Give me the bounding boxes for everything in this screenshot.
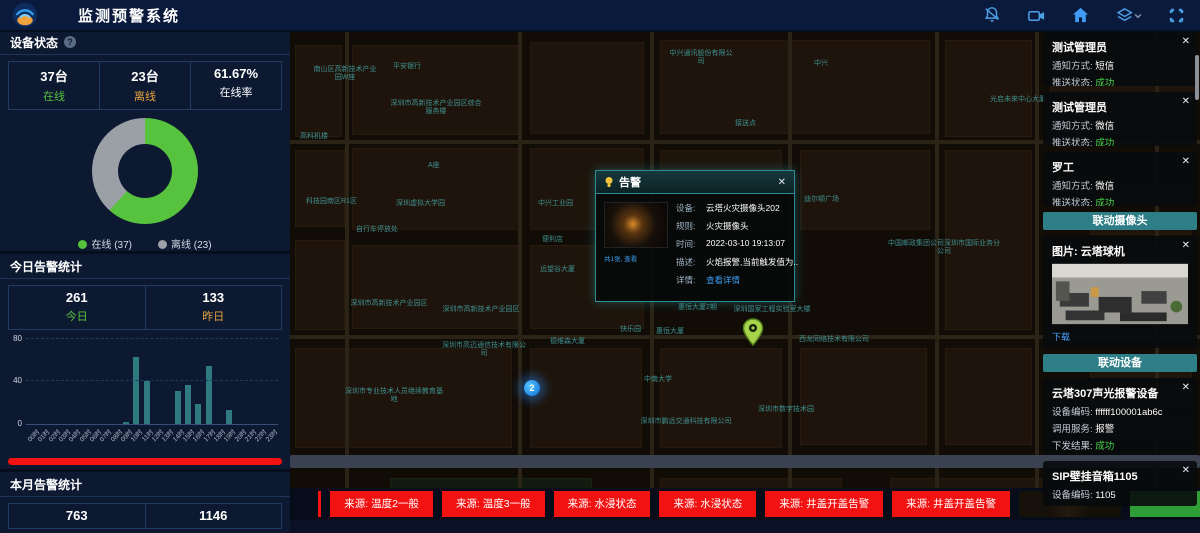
card-close-icon[interactable]: ✕ [1182,465,1190,476]
alert-field-label: 详情: [676,274,706,286]
legend-item: 离线 (23) [158,236,212,251]
bar-slot [90,338,100,424]
linked-devices-header[interactable]: 联动设备 [1043,354,1197,372]
card-row-value: 微信 [1095,121,1114,132]
card-row: 通知方式: 微信 [1052,178,1188,192]
stat-value: 37台 [9,66,99,85]
map-building-block [352,148,519,230]
card-row-value: 短信 [1095,61,1114,72]
map-label: 惠恒大厦 [656,328,684,336]
map-label: 便利店 [542,236,563,244]
card-row: 设备编码: ffffff100001ab6c [1052,404,1188,418]
device-donut-wrap [0,118,290,224]
device-status-donut-chart [92,118,198,224]
map-label: 深圳国家工程实验室大楼 [730,306,814,314]
card-title: 测试管理员 [1052,39,1188,55]
bar [206,366,212,424]
bar-slot [121,338,131,424]
map-park-block [660,478,842,488]
map-label: 中兴工业园 [538,200,573,208]
video-camera-icon[interactable] [1026,5,1046,25]
month-alerts-panel: 本月告警统计 7631146 [0,469,290,533]
map-building-block [530,42,644,134]
map-label: 光启未来中心大厦 [990,96,1046,104]
bar-slot [59,338,69,424]
notification-card: ✕测试管理员通知方式: 短信推送状态: 成功 [1043,32,1197,86]
legend-dot-icon [158,240,167,249]
card-title: 图片: 云塔球机 [1052,243,1188,259]
card-close-icon[interactable]: ✕ [1182,156,1190,167]
stat-value: 763 [9,508,145,523]
ticker-alert-card[interactable] [318,491,321,517]
map-label: 惠恒大厦2期 [678,304,717,312]
ticker-alert-card[interactable]: 来源: 水浸状态 [659,491,756,517]
alarm-bulb-icon [604,176,614,188]
alert-field-row: 规则:火灾摄像头 [676,220,798,232]
card-row-label: 调用服务: [1052,424,1095,435]
card-title: 测试管理员 [1052,99,1188,115]
map-cluster-marker[interactable]: 2 [524,380,540,396]
alert-field-row: 时间:2022-03-10 19:13:07 [676,238,798,250]
card-row: 设备编码: 1105 [1052,487,1188,501]
map-building-block [295,240,345,330]
alert-field-value: 火焰报警,当前触发值为... [706,256,798,268]
card-close-icon[interactable]: ✕ [1182,382,1190,393]
stat-value: 261 [9,290,145,305]
x-axis-label: 23时 [266,428,276,444]
bar-slot [100,338,110,424]
card-close-icon[interactable]: ✕ [1182,240,1190,251]
card-row-label: 通知方式: [1052,121,1095,132]
card-close-icon[interactable]: ✕ [1182,96,1190,107]
device-card: ✕SIP壁挂音箱1105设备编码: 1105 [1043,461,1197,506]
card-title: 云塔307声光报警设备 [1052,385,1188,401]
card-row-label: 设备编码: [1052,490,1095,501]
layers-icon[interactable] [1114,5,1142,25]
stat-label: 在线率 [191,84,281,100]
map-building-block [352,45,519,135]
card-row-value: 成功 [1095,198,1114,206]
stat-value: 133 [146,290,282,305]
stat-cell: 37台在线 [9,62,100,109]
map-building-block [800,150,930,230]
stat-cell: 61.67%在线率 [191,62,281,109]
map-label: 平安银行 [393,63,421,71]
card-row-label: 推送状态: [1052,198,1095,206]
bar-slot [49,338,59,424]
device-status-stats: 37台在线23台离线61.67%在线率 [8,61,282,110]
ticker-alert-card[interactable]: 来源: 水浸状态 [554,491,651,517]
camera-snapshot-image[interactable] [1052,263,1188,325]
alert-field-value: 火灾摄像头 [706,220,749,232]
legend-item: 在线 (37) [78,236,132,251]
stat-cell: 133昨日 [146,286,282,329]
bar-slot [28,338,38,424]
alert-popup-body: 共1张, 查看 设备:云塔火灾摄像头202规则:火灾摄像头时间:2022-03-… [596,194,794,301]
map-label: 自行车停放处 [356,226,398,234]
card-row: 推送状态: 成功 [1052,195,1188,206]
camera-card: ✕图片: 云塔球机下载 [1043,236,1197,348]
stat-value: 23台 [100,66,190,85]
map-label: 西龙同络技术有限公司 [798,336,870,344]
view-detail-link[interactable]: 查看详情 [706,274,740,286]
bar-slot [214,338,224,424]
legend-dot-icon [78,240,87,249]
scrollbar-thumb[interactable] [1195,55,1199,100]
popup-close-icon[interactable]: ✕ [778,177,786,188]
bar [195,404,201,424]
alert-field-row: 详情:查看详情 [676,274,798,286]
app-logo [12,2,38,28]
map-label: 深圳市专业技术人员继续教育基地 [345,388,443,404]
map-park-block [890,478,1042,488]
bar [144,381,150,424]
legend-label: 在线 (37) [91,240,132,251]
download-link[interactable]: 下载 [1052,330,1070,343]
map-label: 快乐园 [620,326,641,334]
card-row-value: 报警 [1095,424,1114,435]
map-park-block [390,478,592,488]
right-panel: ✕测试管理员通知方式: 短信推送状态: 成功✕测试管理员通知方式: 微信推送状态… [1040,30,1200,508]
bar-slot [162,338,172,424]
bar-slot [266,338,276,424]
alert-field-row: 描述:火焰报警,当前触发值为... [676,256,798,268]
bar-slot [224,338,234,424]
map-label: 深圳市高新技术产业园区综合服务楼 [390,100,482,116]
bar-slot [80,338,90,424]
card-row-value: ffffff100001ab6c [1095,407,1162,418]
bar-slot [69,338,79,424]
bar-slot [183,338,193,424]
card-row-value: 1105 [1095,490,1115,501]
today-alerts-header: 今日告警统计 [0,254,290,279]
card-row-label: 通知方式: [1052,181,1095,192]
alert-field-label: 规则: [676,220,706,232]
bar-slot [111,338,121,424]
bar [226,410,232,424]
today-alerts-stats: 261今日133昨日 [8,285,282,330]
map-building-block [945,40,1032,137]
alert-field-label: 设备: [676,202,706,214]
ticker-alert-card[interactable]: 来源: 井盖开盖告警 [892,491,1010,517]
bar [175,391,181,424]
map-label: 科技园南区R1区 [306,198,357,206]
alert-image-col: 共1张, 查看 [604,202,668,292]
bar [185,385,191,424]
map-building-block [800,348,927,445]
map-label: 深圳市数字技术园 [758,406,814,414]
left-sidebar: 设备状态 ? 37台在线23台离线61.67%在线率 在线 (37)离线 (23… [0,30,290,520]
device-status-header: 设备状态 ? [0,30,290,55]
stat-cell: 763 [9,504,146,528]
bar [123,422,129,424]
month-alerts-stats: 7631146 [8,503,282,529]
card-title: SIP壁挂音箱1105 [1052,468,1188,484]
device-card: ✕云塔307声光报警设备设备编码: ffffff100001ab6c调用服务: … [1043,378,1197,455]
stat-label: 昨日 [146,308,282,324]
alert-field-value: 2022-03-10 19:13:07 [706,238,785,250]
card-row-label: 设备编码: [1052,407,1095,418]
map-label: 高科机楼 [300,133,328,141]
bar-slot [152,338,162,424]
stat-label: 在线 [9,88,99,104]
bar-slot [204,338,214,424]
month-alerts-header: 本月告警统计 [0,472,290,497]
app-header: 监测预警系统 [0,0,1200,32]
help-icon[interactable]: ? [64,36,76,48]
map-label: 中兴 [814,60,828,68]
bar-slot [131,338,141,424]
map-label: 迪尔顿广场 [804,196,839,204]
stat-cell: 261今日 [9,286,146,329]
donut-legend: 在线 (37)离线 (23) [0,236,290,251]
map-label: 深圳市高迈通信技术有限公司 [442,342,526,358]
stat-cell: 23台离线 [100,62,191,109]
card-close-icon[interactable]: ✕ [1182,36,1190,47]
fullscreen-icon[interactable] [1166,5,1186,25]
map-label: 德维森大厦 [550,338,585,346]
stat-label: 今日 [9,308,145,324]
map-road [345,30,349,488]
card-row-label: 推送状态: [1052,138,1095,146]
alert-field-label: 时间: [676,238,706,250]
map-label: A座 [428,162,440,170]
alert-popup-header: 告警 ✕ [596,171,794,194]
map-label: 深圳虚拟大学园 [396,200,445,208]
map-building-block [945,348,1032,445]
bell-off-icon[interactable] [982,5,1002,25]
legend-label: 离线 (23) [171,240,212,251]
notification-card: ✕罗工通知方式: 微信推送状态: 成功 [1043,152,1197,206]
card-row: 通知方式: 短信 [1052,58,1188,72]
map-building-block [295,150,345,227]
device-status-panel: 设备状态 ? 37台在线23台离线61.67%在线率 在线 (37)离线 (23… [0,30,290,251]
card-row-value: 成功 [1095,78,1114,86]
map-label: 南山区高新技术产业园W座 [312,66,378,82]
stat-value: 61.67% [191,66,281,81]
alert-popup-title: 告警 [619,174,773,190]
alert-field-value: 云塔火灾摄像头202 [706,202,780,214]
bar-slot [235,338,245,424]
bar [133,357,139,424]
bar-slot [173,338,183,424]
card-row-label: 推送状态: [1052,78,1095,86]
ticker-alert-card[interactable]: 来源: 温度3一般 [442,491,545,517]
alert-field-label: 描述: [676,256,706,268]
card-row-value: 成功 [1095,138,1114,146]
month-alerts-title: 本月告警统计 [10,476,82,493]
map-road [518,30,522,488]
ticker-alert-card[interactable]: 来源: 温度2一般 [330,491,433,517]
card-row-label: 通知方式: [1052,61,1095,72]
card-row: 通知方式: 微信 [1052,118,1188,132]
card-row-value: 成功 [1095,441,1114,452]
home-icon[interactable] [1070,5,1090,25]
card-row: 推送状态: 成功 [1052,135,1188,146]
header-toolbar [982,0,1186,30]
snapshot-count-link[interactable]: 共1张, 查看 [604,253,668,263]
card-title: 罗工 [1052,159,1188,175]
card-row: 调用服务: 报警 [1052,421,1188,435]
bar-slot [142,338,152,424]
notification-card: ✕测试管理员通知方式: 微信推送状态: 成功 [1043,92,1197,146]
ticker-alert-card[interactable]: 来源: 井盖开盖告警 [765,491,883,517]
map-label: 远望谷大厦 [540,266,575,274]
device-status-title: 设备状态 [10,34,58,51]
map-label: 深圳市鹏远交通科技有限公司 [640,418,732,426]
map-label: 中国邮政集团公司深圳市国际业务分公司 [888,240,1000,256]
fire-snapshot-image[interactable] [604,202,668,248]
stat-cell: 1146 [146,504,282,528]
bar-slot [245,338,255,424]
stat-value: 1146 [146,508,282,523]
map-label: 中南大学 [644,376,672,384]
map-road [935,30,939,488]
today-alerts-title: 今日告警统计 [10,258,82,275]
map-building-block [352,245,519,329]
stat-label: 离线 [100,88,190,104]
alert-fields: 设备:云塔火灾摄像头202规则:火灾摄像头时间:2022-03-10 19:13… [676,202,798,292]
map-label: 深圳市高新技术产业园区 [348,300,430,308]
card-row-value: 微信 [1095,181,1114,192]
map-label: 中兴通讯股份有限公司 [668,50,734,66]
map-label: 深圳市高新技术产业园区 [440,306,522,314]
card-row: 下发结果: 成功 [1052,438,1188,452]
map-building-block [295,45,342,137]
today-alerts-panel: 今日告警统计 261今日133昨日 80 40 0 00时01时02时03时04… [0,251,290,469]
bar-slot [193,338,203,424]
alert-popup: 告警 ✕ 共1张, 查看 设备:云塔火灾摄像头202规则:火灾摄像头时间:202… [595,170,795,302]
map-location-pin-icon[interactable] [742,318,764,346]
map-building-block [530,348,642,448]
bar-slot [38,338,48,424]
unhandled-progress-bar [8,458,282,465]
map-building-block [660,348,782,448]
map-label: 接送点 [735,120,756,128]
bar-slot [255,338,265,424]
card-row: 推送状态: 成功 [1052,75,1188,86]
hourly-alerts-bar-chart: 80 40 0 00时01时02时03时04时05时06时07时08时09时10… [26,338,278,450]
linked-cameras-header[interactable]: 联动摄像头 [1043,212,1197,230]
card-row-label: 下发结果: [1052,441,1095,452]
alert-field-row: 设备:云塔火灾摄像头202 [676,202,798,214]
page-title: 监测预警系统 [78,5,180,26]
